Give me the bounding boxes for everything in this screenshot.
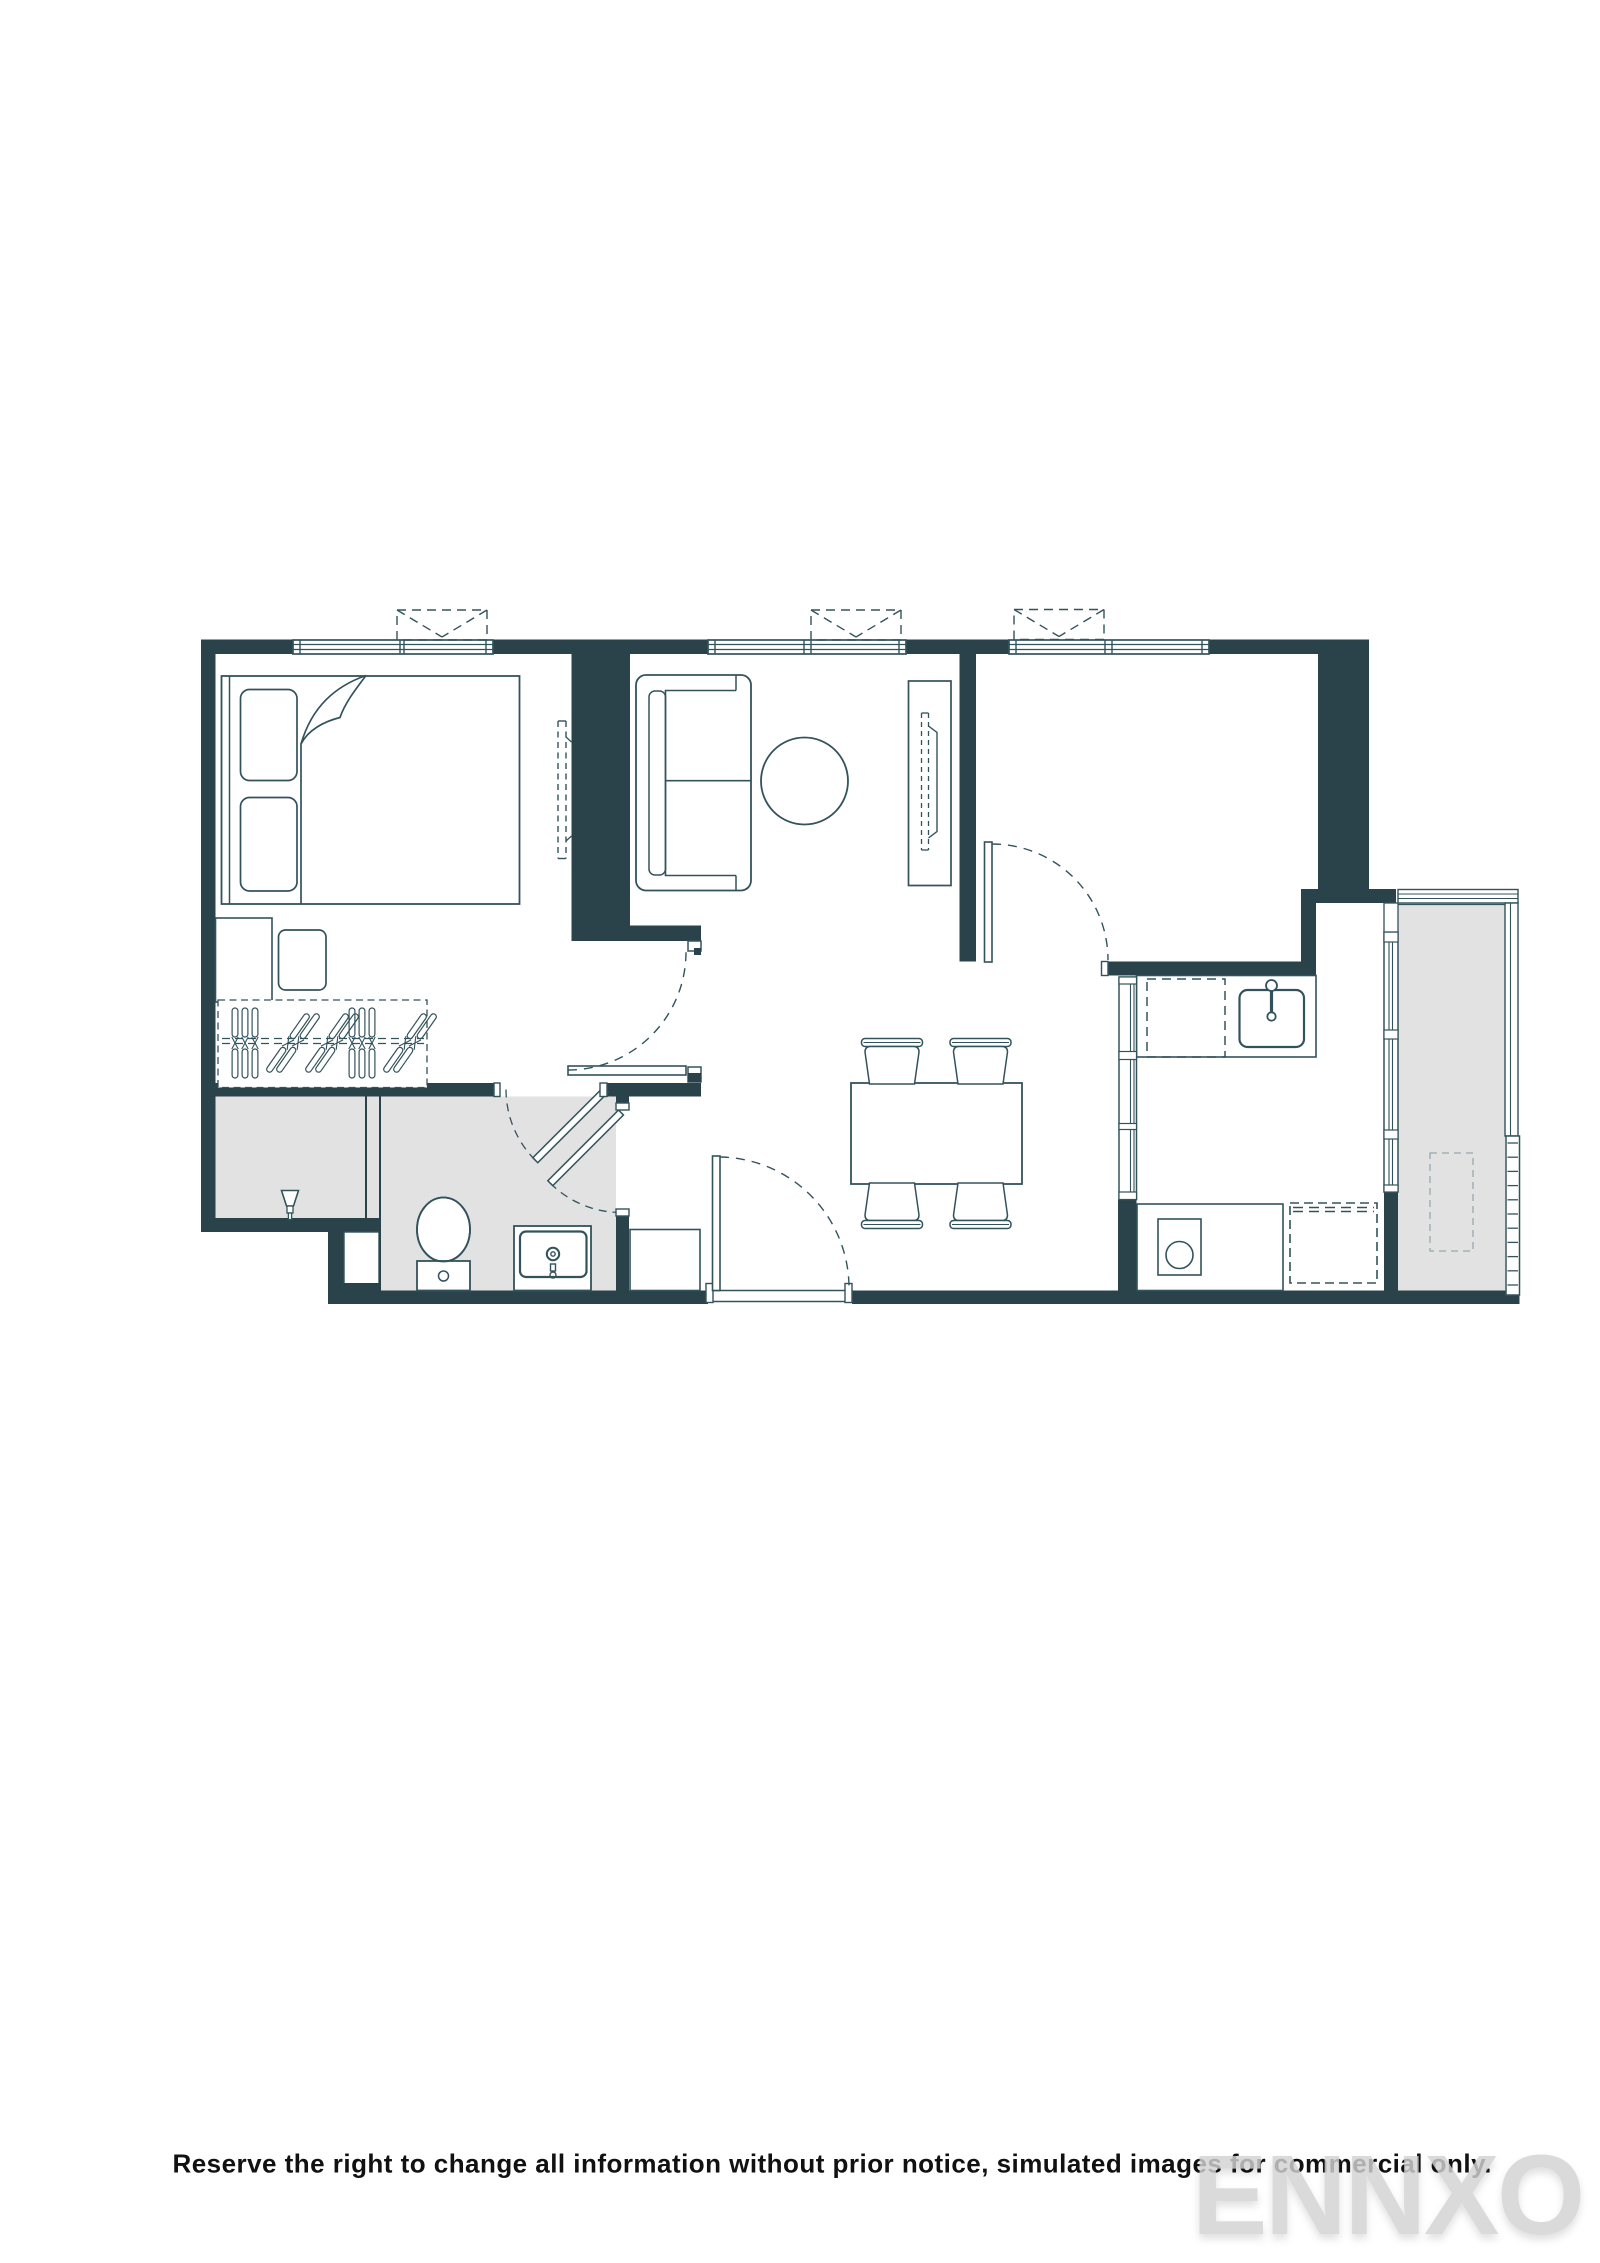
svg-text:ENNXO: ENNXO: [1192, 2132, 1583, 2258]
